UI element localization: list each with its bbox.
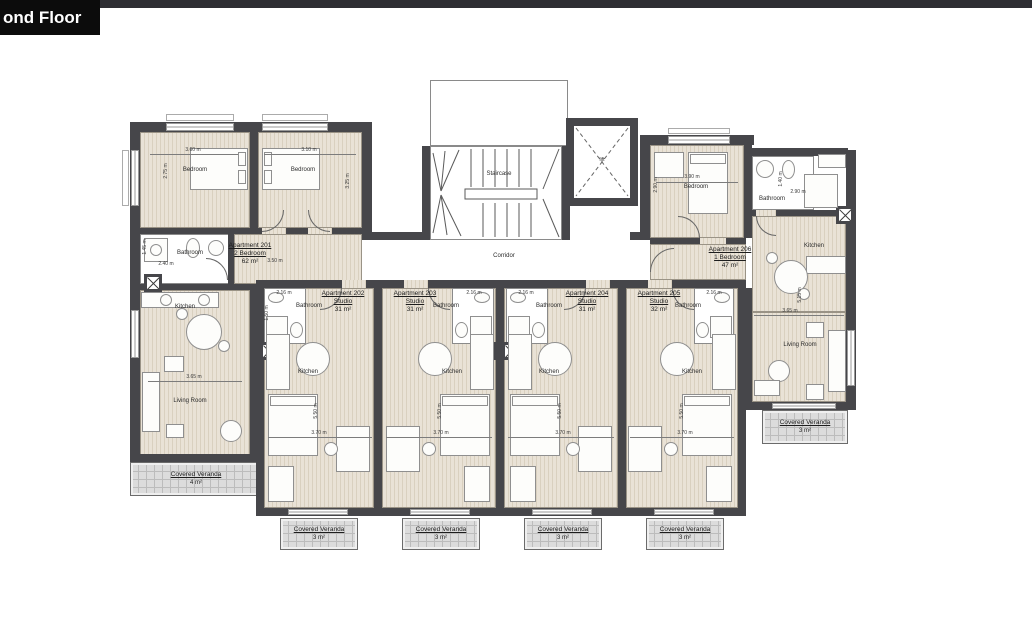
dimension: 3.10 m <box>274 147 344 153</box>
apartment-206-label: Apartment 206 1 Bedroom 47 m² <box>696 246 764 270</box>
window <box>166 123 234 131</box>
wall <box>250 132 258 228</box>
window <box>262 123 328 131</box>
dimension-line <box>630 437 734 438</box>
veranda-area: 4 m² <box>190 479 202 487</box>
kitchen-counter <box>470 334 494 390</box>
staircase: Staircase <box>430 146 562 240</box>
dimension: 2.90 m <box>653 171 659 199</box>
wall <box>130 454 262 462</box>
window <box>847 330 855 386</box>
wall <box>744 288 752 408</box>
dimension: 3.70 m <box>652 430 718 436</box>
window <box>288 509 348 515</box>
apartment-name: Apartment 205 <box>628 290 690 298</box>
dimension-line <box>150 154 238 155</box>
room-label-bathroom: Bathroom <box>744 196 800 203</box>
door-opening <box>648 280 672 288</box>
wall <box>640 135 650 240</box>
window <box>410 509 470 515</box>
dimension: 2.16 m <box>510 290 542 296</box>
sofa <box>828 330 846 392</box>
apartment-name: Apartment 203 <box>384 290 446 298</box>
chair <box>664 442 678 456</box>
room-label-living: Living Room <box>168 398 212 405</box>
pillow <box>238 152 246 166</box>
window <box>532 509 592 515</box>
roof-outline <box>430 80 568 146</box>
veranda-title: Covered Veranda <box>294 526 345 534</box>
veranda-204: Covered Veranda 3 m² <box>524 518 602 550</box>
room-label-bathroom: Bathroom <box>662 303 714 310</box>
sink <box>756 160 774 178</box>
top-accent-bar <box>0 0 1032 8</box>
dimension: 3.50 m <box>258 258 292 264</box>
dimension: 3.25 m <box>345 167 351 195</box>
veranda-title: Covered Veranda <box>171 471 222 479</box>
door-opening <box>404 280 428 288</box>
kitchen-counter <box>508 334 532 390</box>
window <box>131 150 139 206</box>
wall <box>256 280 264 516</box>
chair <box>324 442 338 456</box>
pillow <box>690 154 726 164</box>
apartment-name: Apartment 206 <box>696 246 764 254</box>
dimension-line <box>268 437 372 438</box>
armchair <box>166 424 184 438</box>
window <box>772 403 836 409</box>
pillow <box>442 396 488 406</box>
wardrobe <box>464 466 490 502</box>
corridor <box>372 240 640 280</box>
dimension-line <box>754 315 844 316</box>
veranda-area: 3 m² <box>435 534 447 542</box>
armchair <box>806 322 824 338</box>
coffee-table <box>768 360 790 382</box>
apartment-name: Apartment 201 <box>210 242 290 250</box>
pillow <box>270 396 316 406</box>
room-label-bedroom: Bedroom <box>664 184 728 191</box>
dimension: 1.45 m <box>142 234 148 260</box>
wardrobe <box>268 466 294 502</box>
veranda-area: 3 m² <box>313 534 325 542</box>
room-label-kitchen: Kitchen <box>426 369 478 376</box>
dimension: 2.16 m <box>268 290 300 296</box>
dimension: 3.65 m <box>164 374 224 380</box>
floor-title-text: ond Floor <box>3 8 81 28</box>
floor-plan-page: ond Floor Bedroom Bedroom Ba <box>0 0 1032 627</box>
window-sill <box>262 114 328 121</box>
coffee-table <box>220 420 242 442</box>
pillow <box>684 396 730 406</box>
apartment-area: 47 m² <box>696 262 764 270</box>
wall <box>362 122 372 240</box>
room-label-kitchen: Kitchen <box>152 304 218 311</box>
room-label-kitchen: Kitchen <box>666 369 718 376</box>
dimension: 5.50 m <box>557 397 563 425</box>
apartment-204-label: Apartment 204 Studio 31 m² <box>556 290 618 314</box>
window <box>131 310 139 358</box>
lift: lift <box>574 126 630 198</box>
room-label-bedroom: Bedroom <box>258 167 348 174</box>
desk <box>754 380 780 396</box>
toilet <box>290 322 303 338</box>
room-label-bathroom: Bathroom <box>420 303 472 310</box>
dimension-line <box>386 437 492 438</box>
apartment-202-label: Apartment 202 Studio 31 m² <box>312 290 374 314</box>
wardrobe <box>706 466 732 502</box>
veranda-title: Covered Veranda <box>660 526 711 534</box>
room-label-bathroom: Bathroom <box>523 303 575 310</box>
dimension: 1.40 m <box>778 166 784 192</box>
door-opening <box>342 280 366 288</box>
armchair <box>806 384 824 400</box>
dimension: 3.60 m <box>158 147 228 153</box>
dimension: 2.16 m <box>698 290 730 296</box>
room-label-kitchen: Kitchen <box>523 369 575 376</box>
apartment-type: 1 Bedroom <box>696 254 764 262</box>
corridor-label: Corridor <box>472 253 536 260</box>
window-sill <box>122 150 129 206</box>
floor-title: ond Floor <box>0 0 100 35</box>
apartment-type: 2 Bedroom <box>210 250 290 258</box>
wardrobe <box>510 466 536 502</box>
window-sill <box>166 114 234 121</box>
apartment-205-label: Apartment 205 Studio 32 m² <box>628 290 690 314</box>
chair <box>218 340 230 352</box>
dimension: 3.70 m <box>408 430 474 436</box>
room-label-kitchen: Kitchen <box>788 243 840 250</box>
dimension: 2.90 m <box>780 189 816 195</box>
veranda-202: Covered Veranda 3 m² <box>280 518 358 550</box>
shaft-x-box <box>836 206 854 224</box>
door-opening <box>700 238 726 244</box>
veranda-title: Covered Veranda <box>416 526 467 534</box>
wall <box>496 280 504 516</box>
dimension: 5.50 m <box>313 397 319 425</box>
veranda-area: 3 m² <box>679 534 691 542</box>
room-label-living: Living Room <box>778 342 822 349</box>
dimension-line <box>656 182 738 183</box>
dimension: 5.50 m <box>679 397 685 425</box>
wall <box>744 145 752 238</box>
door-opening <box>586 280 610 288</box>
veranda-area: 3 m² <box>557 534 569 542</box>
shaft-x-box <box>144 274 162 292</box>
dimension-line <box>264 154 356 155</box>
dimension: 3.70 m <box>530 430 596 436</box>
chair <box>422 442 436 456</box>
pillow <box>512 396 558 406</box>
dimension-line <box>508 437 614 438</box>
wall <box>374 280 382 516</box>
dimension: 3.70 m <box>286 430 352 436</box>
wall <box>618 280 626 516</box>
dimension: 3.65 m <box>760 308 820 314</box>
dimension: 3.90 m <box>660 174 724 180</box>
veranda-area: 3 m² <box>799 427 811 435</box>
dining-table <box>186 314 222 350</box>
veranda-title: Covered Veranda <box>538 526 589 534</box>
window-sill <box>668 128 730 134</box>
toilet <box>532 322 545 338</box>
dimension: 5.15 m <box>797 281 803 309</box>
dimension: 2.16 m <box>458 290 490 296</box>
toilet <box>696 322 709 338</box>
dimension: 5.50 m <box>437 397 443 425</box>
dimension-line <box>148 381 242 382</box>
window <box>668 136 730 144</box>
kitchen-counter <box>806 256 846 274</box>
veranda-206: Covered Veranda 3 m² <box>762 410 848 444</box>
kitchen-counter <box>712 334 736 390</box>
wall <box>372 232 430 240</box>
wall <box>422 146 430 240</box>
chair <box>566 442 580 456</box>
shelf <box>818 154 846 168</box>
armchair <box>164 356 184 372</box>
chair <box>766 252 778 264</box>
apartment-name: Apartment 204 <box>556 290 618 298</box>
veranda-201: Covered Veranda 4 m² <box>130 462 262 496</box>
staircase-label: Staircase <box>459 171 539 178</box>
kitchen-counter <box>266 334 290 390</box>
apartment-name: Apartment 202 <box>312 290 374 298</box>
toilet <box>455 322 468 338</box>
dimension: 2.40 m <box>148 261 184 267</box>
wall <box>650 238 746 244</box>
dimension: 2.75 m <box>163 157 169 185</box>
veranda-title: Covered Veranda <box>780 419 831 427</box>
veranda-203: Covered Veranda 3 m² <box>402 518 480 550</box>
room-label-bathroom: Bathroom <box>284 303 334 310</box>
lift-label: lift <box>588 157 616 164</box>
dimension: 1.50 m <box>264 300 270 326</box>
veranda-205: Covered Veranda 3 m² <box>646 518 724 550</box>
apartment-203-label: Apartment 203 Studio 31 m² <box>384 290 446 314</box>
window <box>654 509 714 515</box>
room-label-kitchen: Kitchen <box>282 369 334 376</box>
